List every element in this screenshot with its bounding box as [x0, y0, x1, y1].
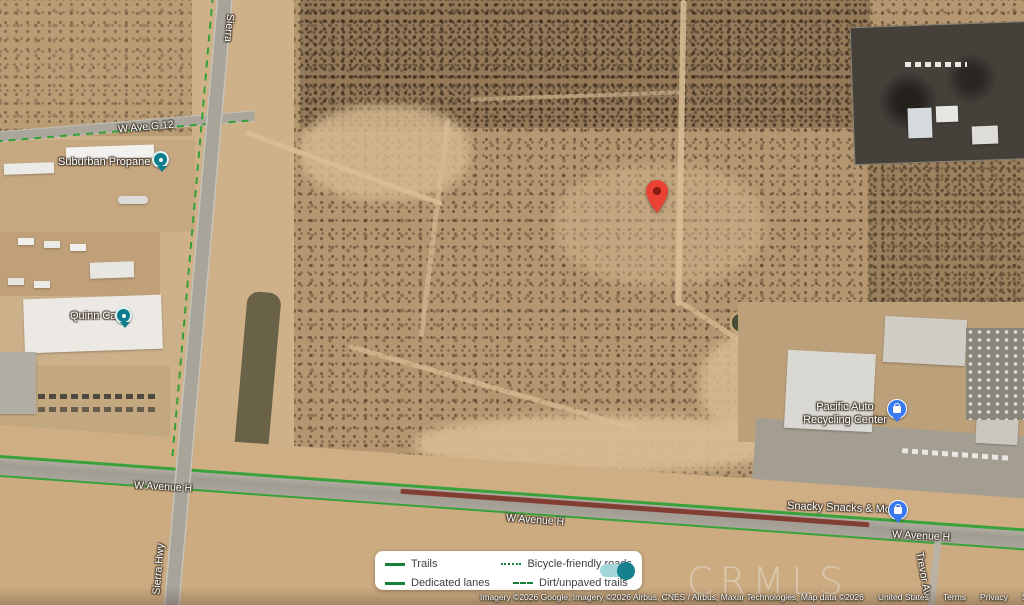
vehicle-row — [38, 407, 156, 412]
vehicle-row — [905, 62, 967, 67]
vehicle — [70, 244, 86, 251]
terrain-scrub-dense-right — [868, 158, 1024, 308]
auto-salvage-rows — [966, 328, 1024, 420]
propane-tank — [118, 196, 148, 204]
shopping-bag-icon — [894, 507, 902, 514]
dashed-line-icon — [513, 582, 533, 584]
warehouse — [883, 316, 967, 366]
building — [936, 106, 959, 123]
attribution-bar: Imagery ©2026 Google, Imagery ©2026 Airb… — [480, 592, 1018, 602]
legend-item-trails: Trails — [385, 558, 501, 570]
building — [90, 261, 135, 279]
map-legend-card: Trails Bicycle-friendly roads Dedicated … — [375, 551, 642, 590]
place-marker-suburban-propane[interactable] — [152, 151, 169, 168]
solid-line-icon — [385, 582, 405, 585]
quinn-cat-building — [23, 295, 163, 354]
road-label-sierra-top: Sierra — [222, 14, 236, 43]
vehicle — [18, 238, 34, 245]
building — [0, 352, 36, 414]
legend-toggle[interactable] — [600, 564, 633, 577]
shopping-bag-icon — [893, 406, 901, 413]
map-canvas[interactable]: W Ave G 12 Sierra Sierra Hwy W Avenue H … — [0, 0, 1024, 605]
toggle-knob — [617, 562, 635, 580]
place-label-suburban-propane[interactable]: Suburban Propane — [58, 156, 150, 169]
vehicle-row — [38, 394, 156, 399]
red-map-pin[interactable] — [646, 180, 668, 213]
pin-icon — [646, 180, 668, 213]
vehicle — [8, 278, 24, 285]
place-label-pacific-auto[interactable]: Pacific Auto Recycling Center — [800, 401, 890, 427]
terrain-scrub-topleft — [0, 0, 192, 136]
building — [4, 162, 54, 175]
place-marker-pacific-auto[interactable] — [887, 399, 907, 419]
building — [972, 126, 999, 145]
imagery-attribution: Imagery ©2026 Google, Imagery ©2026 Airb… — [480, 592, 864, 602]
place-label-quinn-cat[interactable]: Quinn Cat — [70, 310, 120, 323]
vehicle — [34, 281, 50, 288]
place-label-line: Pacific Auto — [800, 401, 890, 414]
building — [975, 417, 1018, 445]
place-marker-snacky-snacks[interactable] — [888, 500, 908, 520]
terms-link[interactable]: Terms — [943, 592, 966, 602]
place-marker-quinn-cat[interactable] — [115, 307, 132, 324]
dotted-line-icon — [501, 563, 521, 565]
vehicle — [44, 241, 60, 248]
country-label: United States — [878, 592, 929, 602]
place-label-line: Recycling Center — [800, 414, 890, 427]
legend-label: Trails — [411, 558, 437, 570]
solid-line-icon — [385, 563, 405, 566]
privacy-link[interactable]: Privacy — [980, 592, 1008, 602]
building — [907, 108, 932, 139]
